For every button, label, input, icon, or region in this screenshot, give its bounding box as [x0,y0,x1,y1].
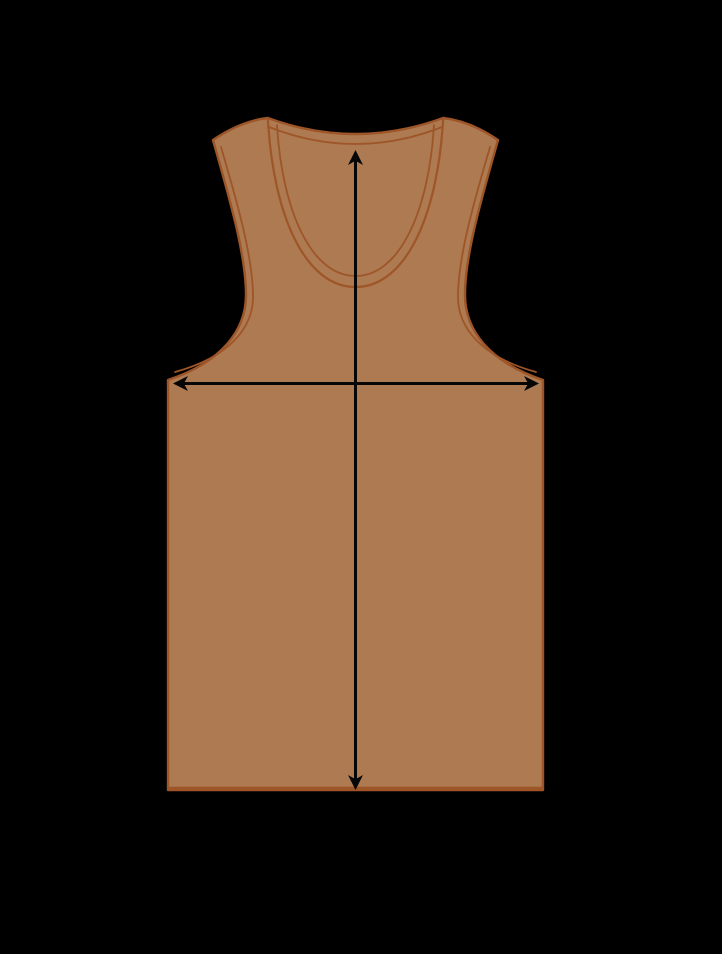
page-background: { "canvas": { "width": 722, "height": 95… [0,0,722,954]
size-guide-diagram [0,0,722,954]
tank-top-measurement-svg [0,0,722,954]
